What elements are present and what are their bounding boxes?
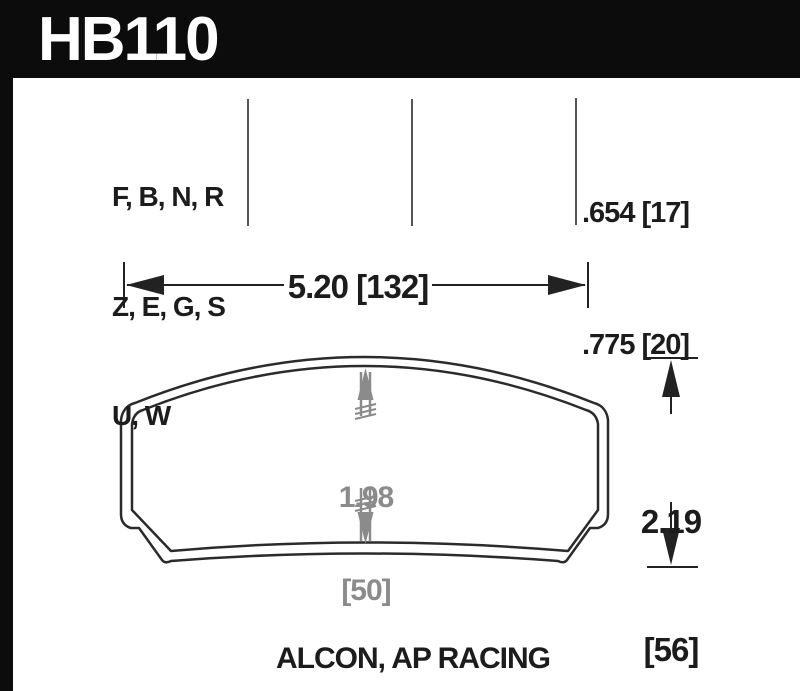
caliper-application-caption: ALCON, AP RACING bbox=[0, 642, 800, 676]
column-divider-lines bbox=[248, 98, 576, 226]
right-arrowhead bbox=[548, 275, 586, 295]
center-height-dimension-label: 1.98 [50] bbox=[316, 420, 416, 668]
brake-pad-spec-sheet: HB110 bbox=[0, 0, 800, 691]
compound-line: Z, E, G, S bbox=[112, 289, 225, 326]
center-height-mm: [50] bbox=[316, 575, 416, 606]
center-height-inches: 1.98 bbox=[316, 482, 416, 513]
top-hatch-marks bbox=[355, 404, 376, 419]
overall-height-inches: 2.19 bbox=[621, 501, 721, 544]
compound-codes-list: F, B, N, R Z, E, G, S U, W bbox=[112, 106, 225, 508]
thickness-line: .775 [20] bbox=[582, 323, 689, 367]
pad-thickness-values: .654 [17] .775 [20] bbox=[582, 103, 689, 455]
thickness-line: .654 [17] bbox=[582, 191, 689, 235]
compound-line: U, W bbox=[112, 398, 225, 435]
width-dimension-label: 5.20 [132] bbox=[238, 268, 478, 306]
compound-line: F, B, N, R bbox=[112, 179, 225, 216]
